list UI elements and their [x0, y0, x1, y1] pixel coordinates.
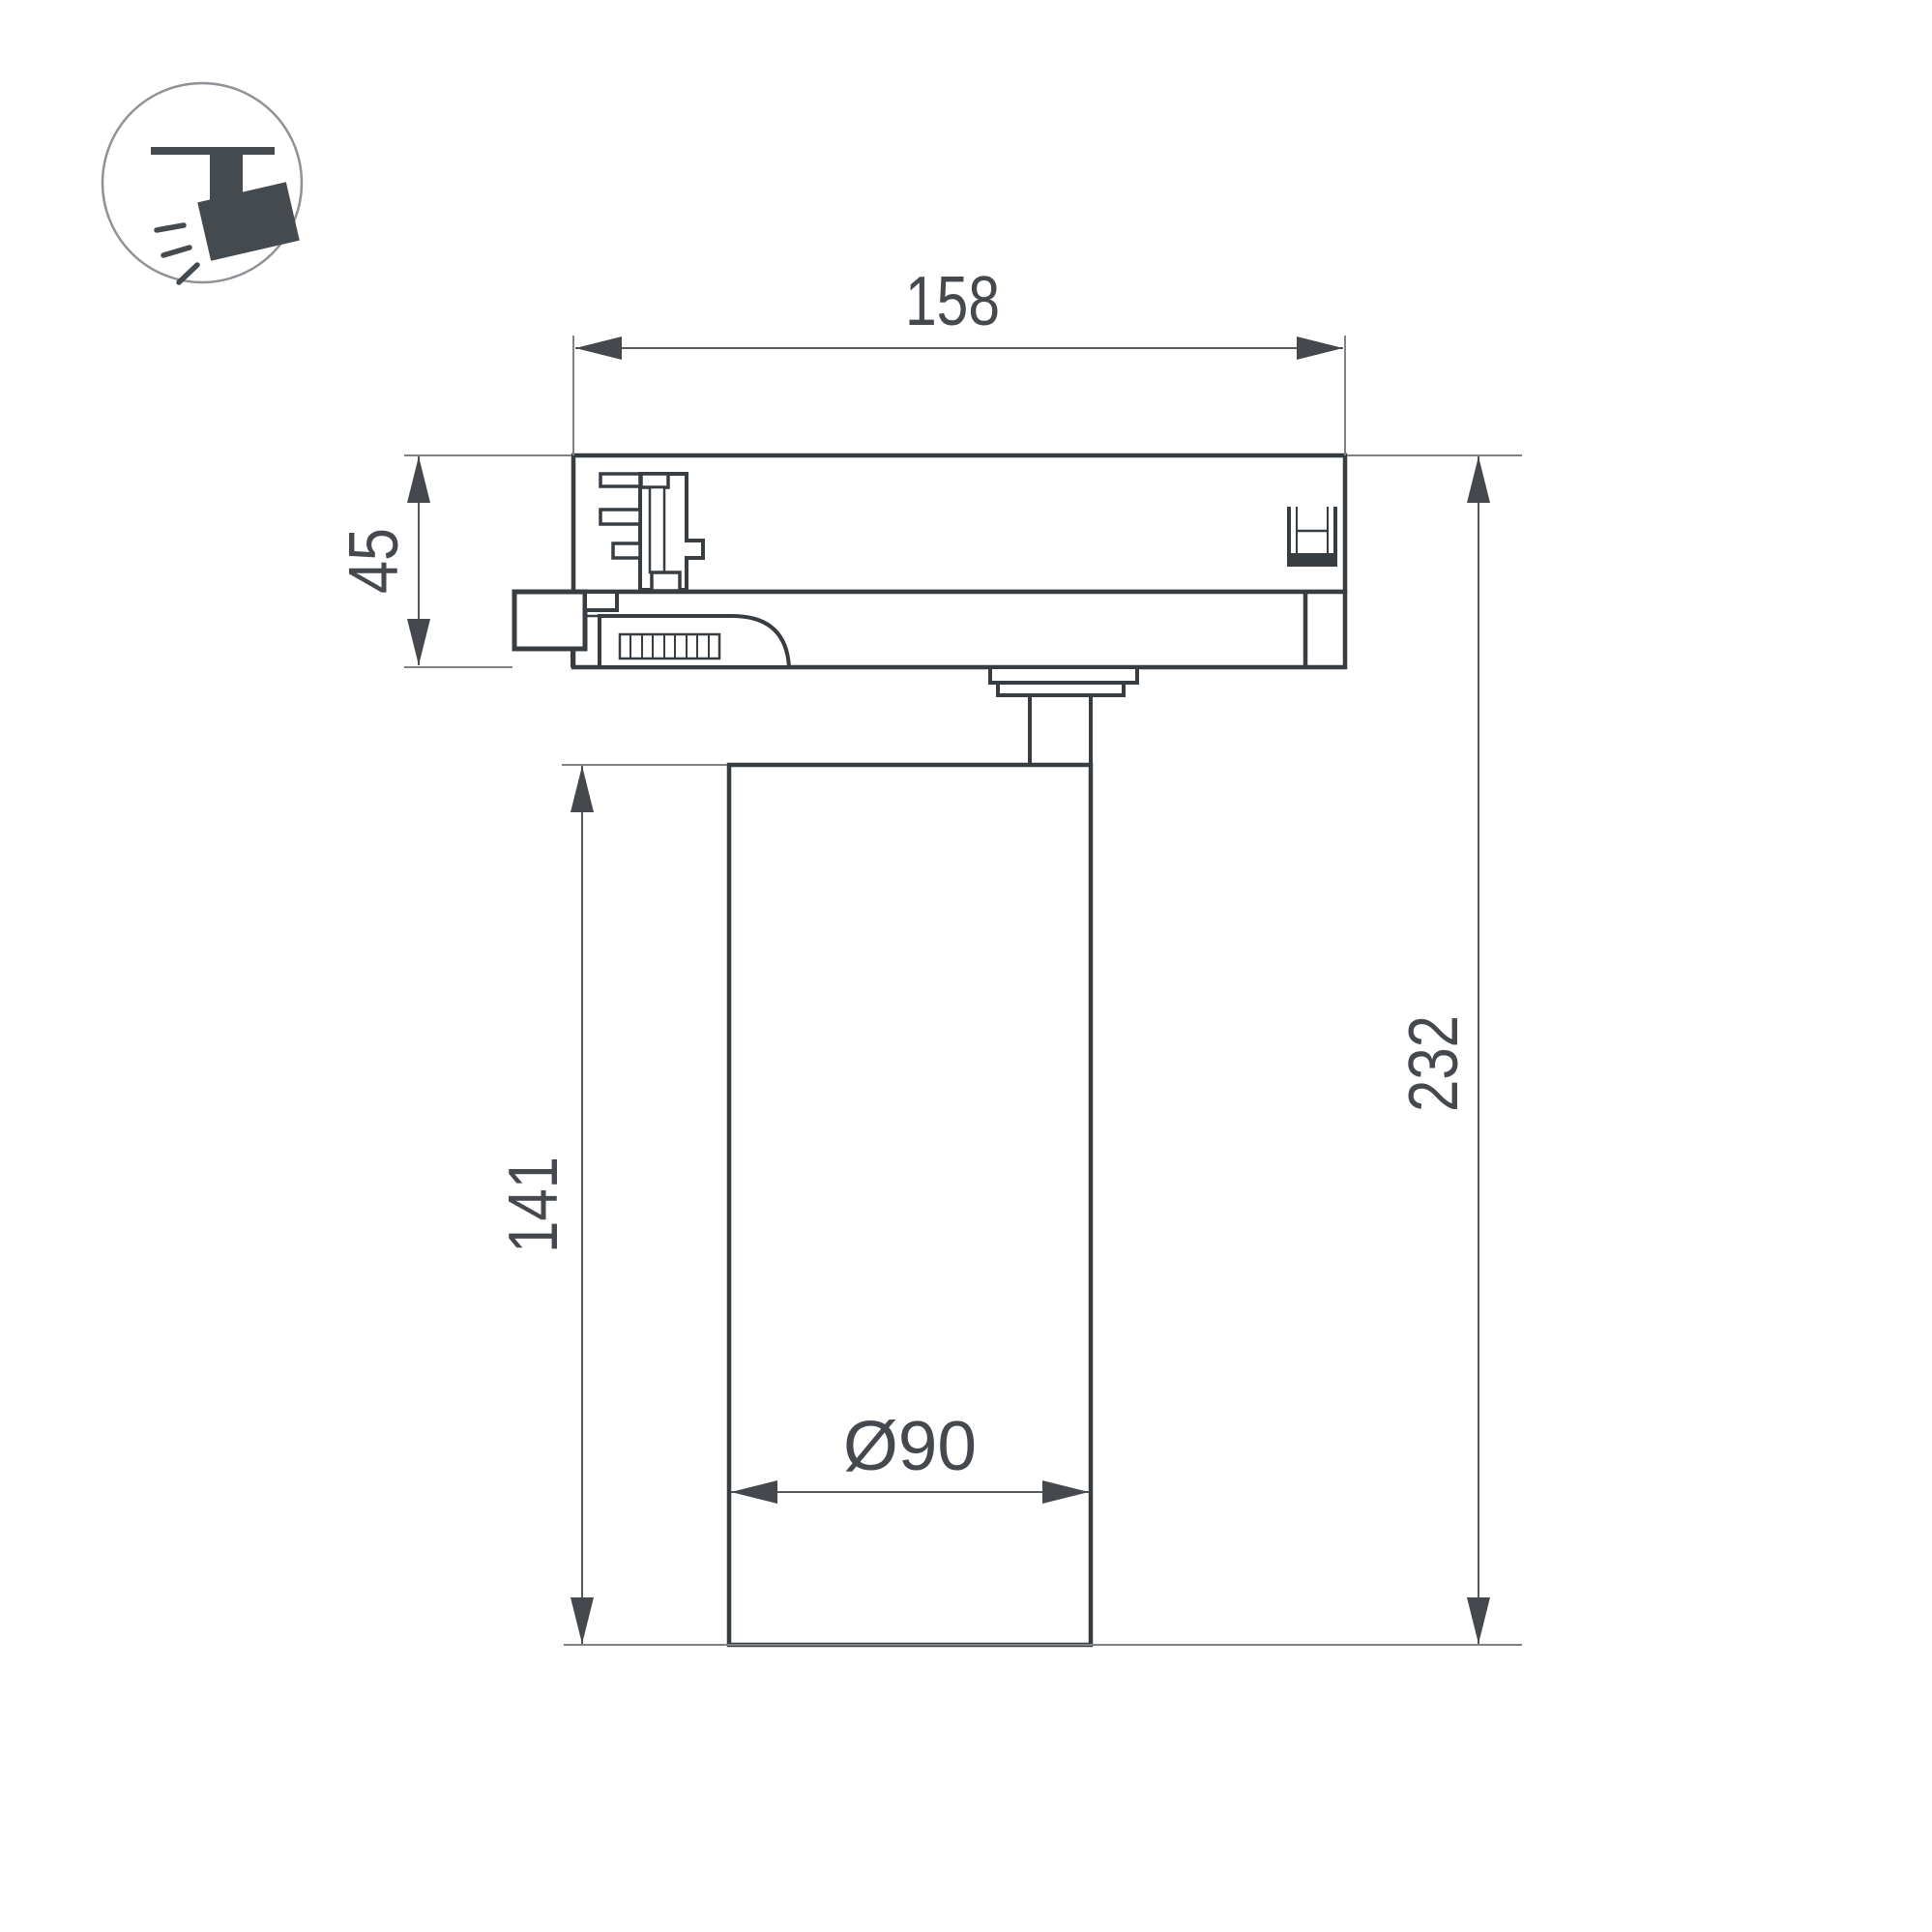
- arrowhead-up: [407, 456, 430, 503]
- track-spotlight-icon: [102, 83, 302, 282]
- track-spotlight-dimensional-drawing: 158 45 232 141 Ø90: [0, 0, 1932, 1932]
- track-adapter: [514, 455, 1345, 667]
- arrowhead-right: [1297, 337, 1343, 360]
- arrowhead-down: [407, 619, 430, 665]
- contact-pin-3: [613, 543, 640, 558]
- icon-light-ray-1: [157, 225, 184, 230]
- clamp-lever-block: [514, 592, 585, 649]
- icon-circle: [102, 83, 302, 282]
- contact-pin-1: [600, 474, 640, 486]
- icon-light-ray-3: [179, 265, 197, 282]
- arrowhead-down: [571, 1597, 594, 1644]
- mount-stem: [1030, 695, 1091, 765]
- arrowhead-left: [575, 337, 622, 360]
- dimensional-drawing-page: 158 45 232 141 Ø90: [0, 0, 1932, 1932]
- clip-base: [1289, 553, 1335, 565]
- arrowhead-up: [1467, 456, 1490, 503]
- dimension-label: 141: [495, 1156, 572, 1253]
- arrowhead-down: [1467, 1597, 1490, 1644]
- lamp-body-cylinder: [729, 765, 1091, 1645]
- dimension-adapter-width: 158: [573, 263, 1345, 455]
- phase-selector: [600, 616, 789, 667]
- clamp-latch: [585, 592, 617, 610]
- contact-screw-shaft: [650, 487, 664, 572]
- arrowhead-up: [571, 766, 594, 812]
- icon-track-rail: [151, 147, 275, 155]
- mount-flange-upper: [990, 667, 1137, 683]
- adapter-upper-housing: [573, 455, 1345, 592]
- dimension-label: 45: [336, 528, 413, 594]
- contact-pin-2: [600, 510, 640, 524]
- contact-screw-foot: [652, 572, 680, 591]
- dimension-label: 158: [905, 263, 1000, 340]
- icon-light-ray-2: [163, 248, 190, 255]
- selector-scale: [620, 634, 719, 659]
- dimension-label: Ø90: [843, 1408, 977, 1485]
- dimension-label: 232: [1395, 1015, 1473, 1112]
- dimension-body-height: 141: [495, 765, 727, 1644]
- retaining-clip: [1289, 507, 1335, 565]
- contact-screw-cap: [641, 474, 668, 487]
- swivel-mount: [990, 667, 1137, 765]
